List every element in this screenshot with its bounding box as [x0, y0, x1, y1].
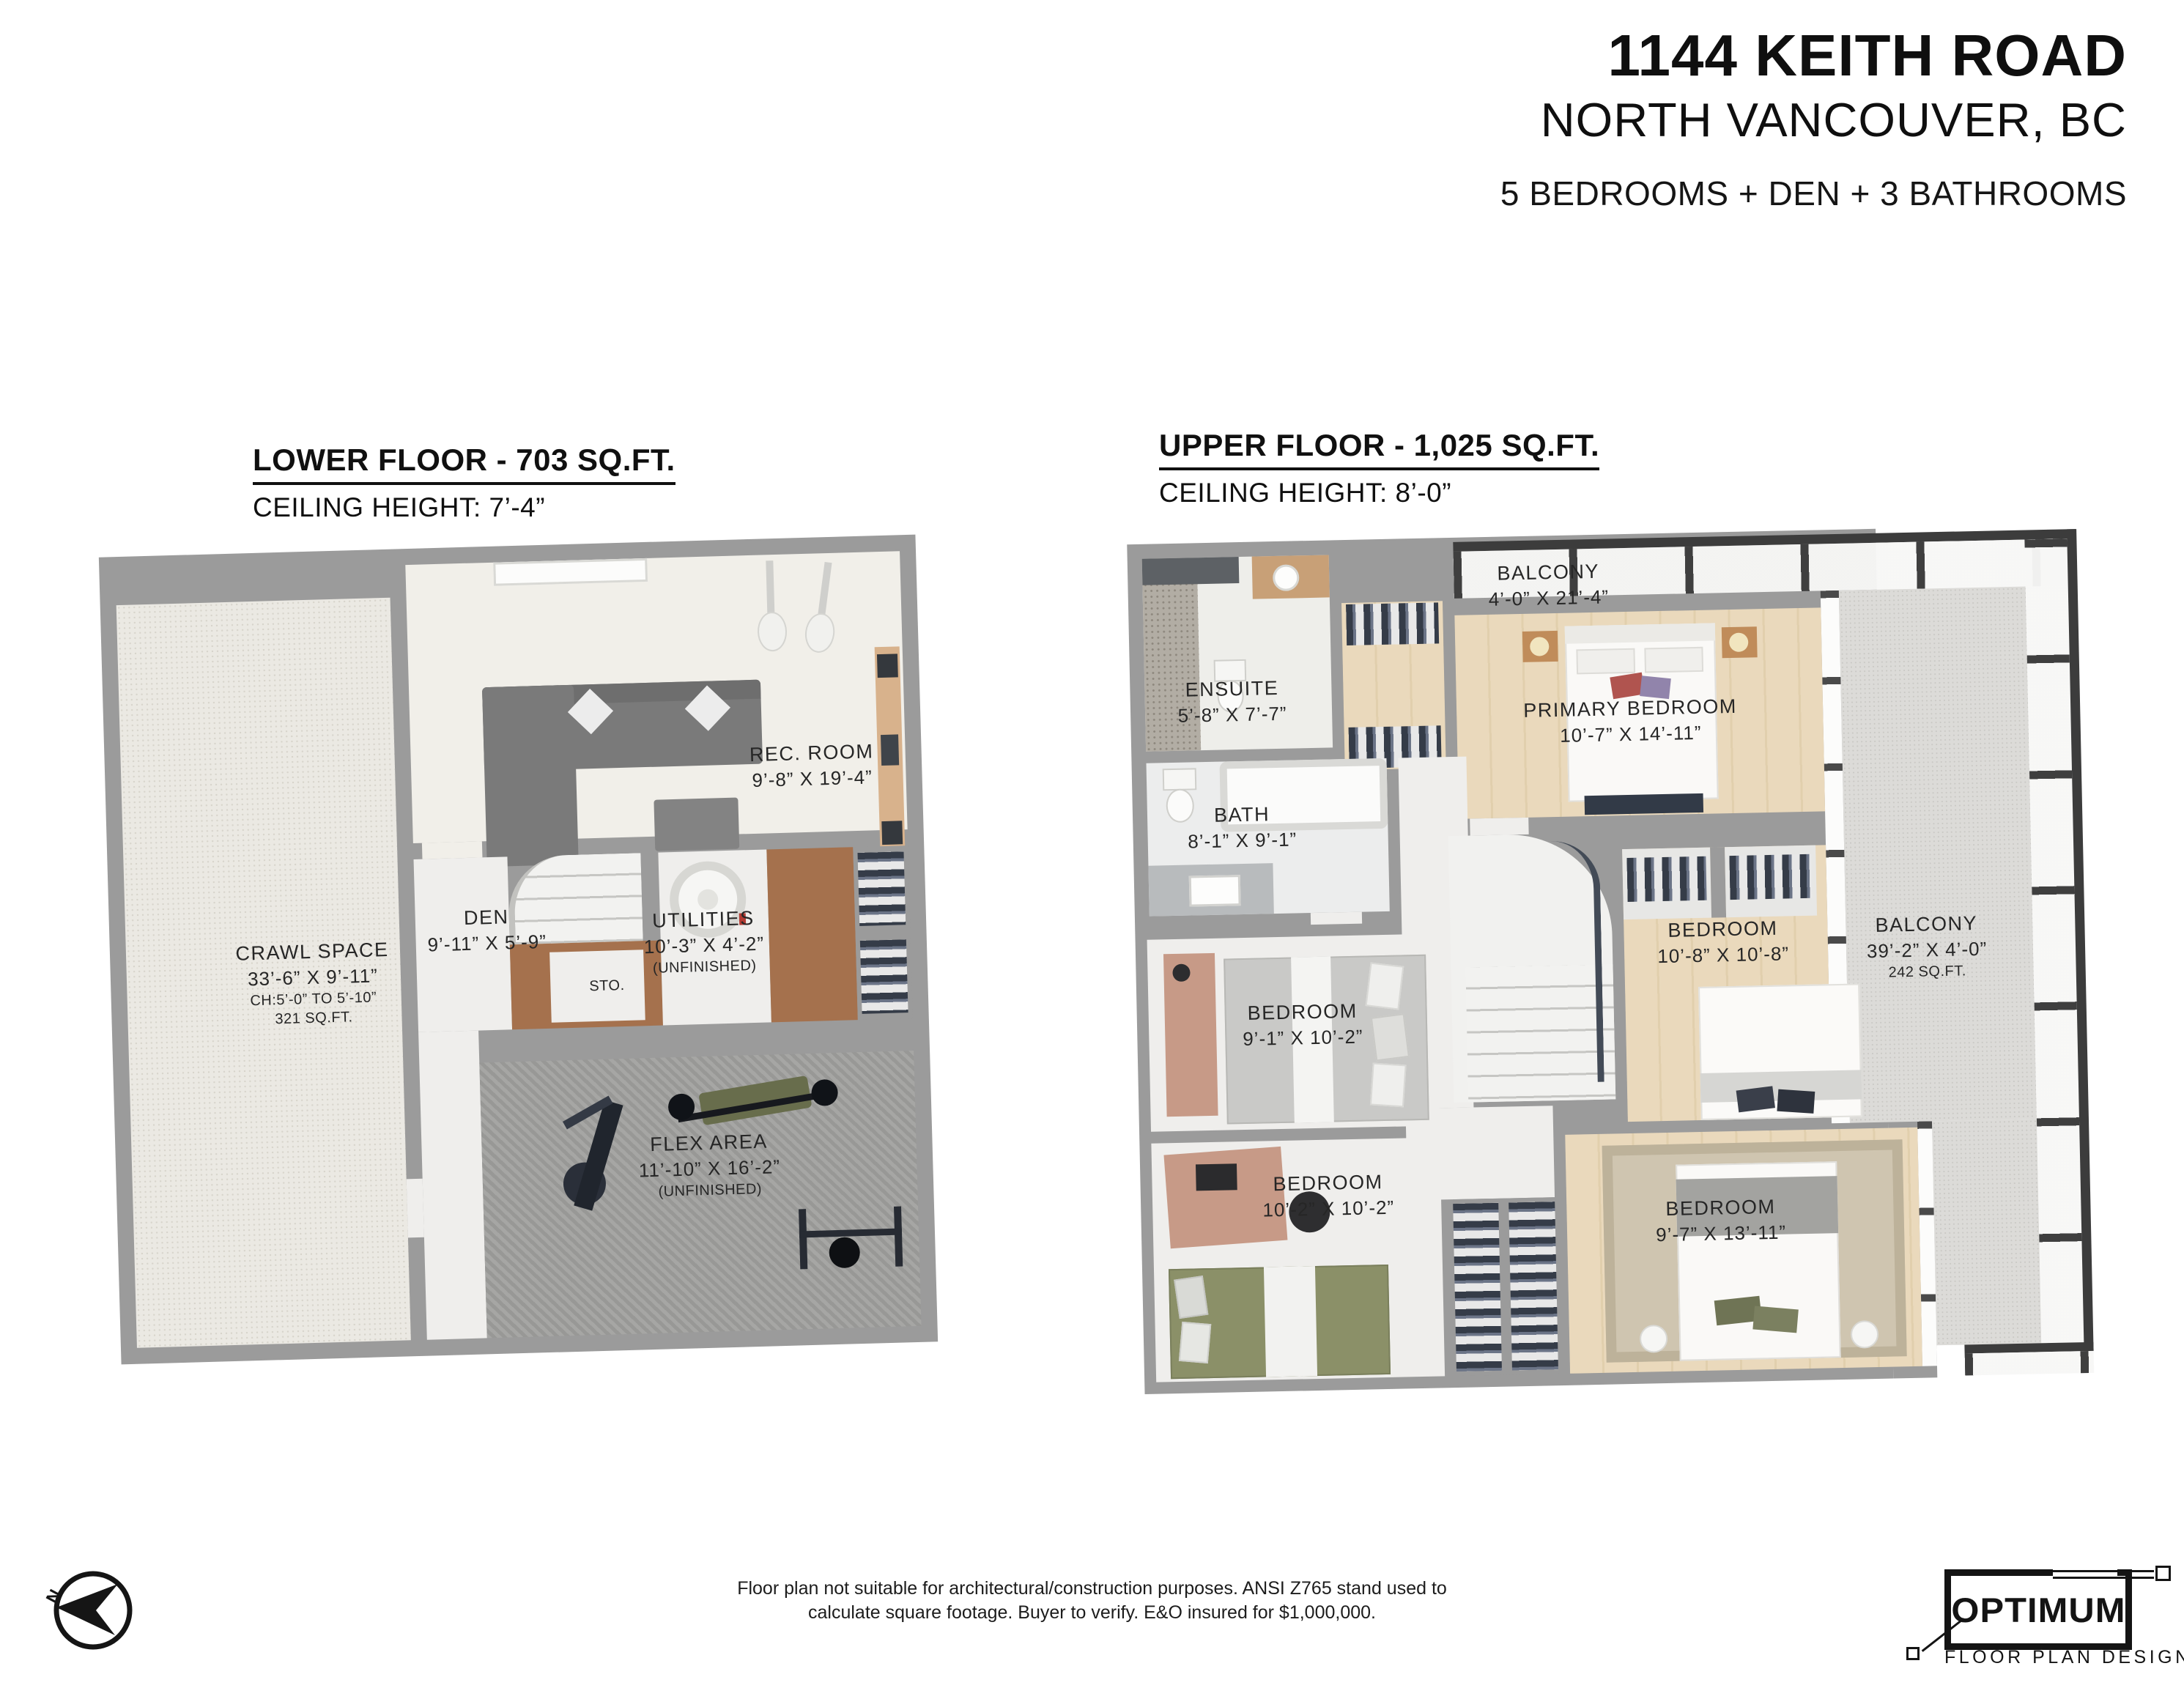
right-balcony-floor: [1932, 1119, 2041, 1345]
bed-pillow: [1370, 1062, 1407, 1107]
room-dims: 8’-1” X 9’-1”: [1188, 828, 1297, 853]
room-dims: 9’-11” X 5’-9”: [427, 930, 547, 957]
bed-pillow: [1179, 1322, 1211, 1363]
bedroom-mid-floor: [1622, 845, 1832, 1122]
closet-clothes: [1626, 856, 1706, 902]
bed-pillow: [1644, 647, 1703, 673]
room-note: 242 SQ.FT.: [1867, 963, 1988, 982]
logo-title: OPTIMUM: [1951, 1590, 2125, 1630]
room-label-balcony-right: BALCONY 39’-2” X 4’-0” 242 SQ.FT.: [1866, 912, 1988, 982]
disclaimer-line1: Floor plan not suitable for architectura…: [737, 1577, 1447, 1601]
closet-clothes: [1453, 1203, 1502, 1371]
room-name: BEDROOM: [1655, 1196, 1785, 1221]
bed-pillow: [1777, 1089, 1815, 1114]
rec-room-floor: [405, 551, 907, 843]
listing-header: 1144 KEITH ROAD NORTH VANCOUVER, BC 5 BE…: [1500, 25, 2127, 213]
guitar-icon: [796, 560, 849, 659]
bed-pillow: [1736, 1086, 1775, 1112]
doorway-opening: [422, 841, 483, 859]
room-dims: 11’-10” X 16’-2”: [638, 1155, 780, 1182]
bed-pillow: [1371, 1013, 1410, 1061]
logo-tape-hook-end: [1906, 1647, 1920, 1660]
bed-pillow: [1576, 648, 1635, 675]
room-dims: 39’-2” X 4’-0”: [1867, 938, 1988, 963]
accent-pillow: [1640, 675, 1671, 699]
logo-frame: OPTIMUM: [1944, 1569, 2132, 1650]
logo-tape-line: [2053, 1577, 2154, 1579]
sofa-chaise: [482, 685, 579, 867]
closet: [1453, 1197, 1558, 1376]
vanity-sink: [1189, 875, 1241, 906]
closet-clothes: [860, 939, 908, 1014]
weight-plate: [829, 1237, 860, 1268]
room-label-sto: STO.: [589, 975, 625, 995]
ottoman: [654, 798, 739, 851]
room-note: (UNFINISHED): [644, 958, 765, 978]
room-name: PRIMARY BEDROOM: [1523, 695, 1737, 722]
doorway-opening: [1470, 818, 1528, 836]
walkin-closet-floor: [1341, 601, 1446, 770]
room-dims: 10’-2” X 10’-2”: [1262, 1196, 1394, 1222]
room-name: BEDROOM: [1262, 1171, 1393, 1196]
closet: [853, 845, 913, 1020]
closet-clothes: [1509, 1202, 1558, 1370]
room-label-bedroom-br: BEDROOM 9’-7” X 13’-11”: [1655, 1196, 1786, 1247]
room-label-flex: FLEX AREA 11’-10” X 16’-2” (UNFINISHED): [637, 1130, 781, 1201]
room-label-balcony-top: BALCONY 4’-0” X 21’-4”: [1488, 560, 1610, 610]
upper-floor-title: UPPER FLOOR - 1,025 SQ.FT. CEILING HEIGH…: [1159, 428, 1599, 508]
room-name: ENSUITE: [1177, 677, 1287, 702]
desk-monitor: [1196, 1163, 1237, 1191]
bed-headboard: [1565, 623, 1715, 643]
room-label-bedroom-mid: BEDROOM 10’-8” X 10’-8”: [1656, 917, 1789, 968]
bed-sheet: [1264, 1266, 1317, 1377]
room-label-crawl: CRAWL SPACE 33’-6” X 9’-11” CH:5’-0” TO …: [235, 939, 390, 1029]
room-name: BEDROOM: [1242, 1000, 1363, 1025]
room-label-den: DEN 9’-11” X 5’-9”: [426, 905, 547, 957]
logo-tape-end: [2155, 1566, 2171, 1581]
room-name: REC. ROOM: [749, 740, 874, 766]
room-label-ensuite: ENSUITE 5’-8” X 7’-7”: [1177, 677, 1287, 728]
subfloor-corridor: [766, 847, 858, 1022]
lower-floor-title: LOWER FLOOR - 703 SQ.FT. CEILING HEIGHT:…: [253, 443, 675, 523]
accent-wall: [1142, 557, 1240, 585]
room-label-primary: PRIMARY BEDROOM 10’-7” X 14’-11”: [1523, 695, 1738, 748]
bed-pillow: [1366, 962, 1404, 1010]
doorway-opening: [1311, 912, 1362, 925]
room-label-utilities: UTILITIES 10’-3” X 4’-2” (UNFINISHED): [643, 907, 765, 978]
logo-subtitle: FLOOR PLAN DESIGNS: [1944, 1647, 2184, 1668]
room-dims: 5’-8” X 7’-7”: [1177, 703, 1287, 728]
property-address: 1144 KEITH ROAD: [1500, 25, 2127, 86]
room-name: CRAWL SPACE: [235, 939, 389, 966]
brand-logo: OPTIMUM FLOOR PLAN DESIGNS: [1936, 1563, 2177, 1677]
balcony-glass-panels: [1965, 1351, 2095, 1376]
room-name: BALCONY: [1866, 912, 1987, 937]
property-summary: 5 BEDROOMS + DEN + 3 BATHROOMS: [1500, 174, 2127, 213]
room-dims: 10’-3” X 4’-2”: [643, 933, 764, 959]
room-dims: 33’-6” X 9’-11”: [236, 964, 390, 991]
property-city: NORTH VANCOUVER, BC: [1500, 92, 2127, 147]
room-label-bath: BATH 8’-1” X 9’-1”: [1187, 802, 1297, 853]
room-note: CH:5’-0” TO 5’-10”: [237, 989, 390, 1010]
closet: [1725, 845, 1817, 918]
bedroom-br-floor: [1565, 1128, 1922, 1374]
room-label-bedroom-left: BEDROOM 9’-1” X 10’-2”: [1242, 1000, 1363, 1051]
room-name: BEDROOM: [1656, 917, 1788, 942]
room-dims: 10’-8” X 10’-8”: [1657, 942, 1789, 968]
desk: [1163, 953, 1218, 1117]
room-label-rec: REC. ROOM 9’-8” X 19’-4”: [749, 740, 875, 792]
bed-bench: [1585, 793, 1704, 815]
room-label-bedroom-bl: BEDROOM 10’-2” X 10’-2”: [1262, 1171, 1394, 1222]
room-name: UTILITIES: [643, 907, 763, 933]
room-dims: 9’-8” X 19’-4”: [749, 766, 874, 792]
right-balcony-floor: [1839, 587, 2037, 1123]
closet: [1622, 848, 1711, 919]
closet-clothes: [857, 851, 906, 926]
closet-clothes: [1729, 854, 1812, 900]
toilet-tank: [1163, 768, 1197, 791]
bed-pillow: [1174, 1276, 1208, 1319]
upper-floor-heading: UPPER FLOOR - 1,025 SQ.FT.: [1159, 428, 1599, 470]
room-name: DEN: [426, 905, 546, 931]
speaker: [877, 654, 898, 678]
squat-rack: [894, 1207, 903, 1267]
closet-wall: [1710, 847, 1726, 917]
room-dims: 9’-7” X 13’-11”: [1656, 1221, 1786, 1247]
speaker: [881, 734, 899, 766]
floor-plan-page: 1144 KEITH ROAD NORTH VANCOUVER, BC 5 BE…: [0, 0, 2184, 1688]
disclaimer-line2: calculate square footage. Buyer to verif…: [737, 1601, 1447, 1625]
room-dims: 9’-1” X 10’-2”: [1243, 1026, 1363, 1051]
closet-clothes: [1346, 602, 1439, 645]
stair-railing: [1551, 840, 1604, 1083]
crawl-access-opening: [407, 1179, 424, 1238]
logo-tape-line: [2053, 1570, 2154, 1572]
window: [493, 558, 648, 586]
upper-floor-ceiling: CEILING HEIGHT: 8’-0”: [1159, 478, 1599, 508]
room-name: FLEX AREA: [637, 1130, 780, 1156]
lower-floor-heading: LOWER FLOOR - 703 SQ.FT.: [253, 443, 675, 485]
lower-floor-ceiling: CEILING HEIGHT: 7’-4”: [253, 492, 675, 523]
north-arrow-icon: N: [40, 1559, 143, 1662]
disclaimer: Floor plan not suitable for architectura…: [737, 1577, 1447, 1625]
room-name: BATH: [1187, 802, 1296, 827]
guitar-icon: [749, 560, 793, 656]
squat-rack-bar: [799, 1229, 902, 1238]
squat-rack: [799, 1209, 807, 1269]
lower-hall-floor: [418, 1031, 487, 1340]
room-name: STO.: [589, 977, 625, 995]
staircase: [1448, 832, 1616, 1103]
speaker: [881, 821, 903, 845]
room-dims: 10’-7” X 14’-11”: [1524, 721, 1738, 748]
room-dims: 4’-0” X 21’-4”: [1488, 585, 1609, 610]
room-name: BALCONY: [1488, 560, 1609, 585]
bed-pillow: [1752, 1306, 1798, 1333]
weight-plate: [811, 1079, 838, 1106]
upper-floor-plan: BALCONY 4’-0” X 21’-4” ENSUITE 5’-8” X 7…: [1083, 503, 2105, 1399]
lower-floor-plan: REC. ROOM 9’-8” X 19’-4” DEN 9’-11” X 5’…: [99, 535, 938, 1365]
